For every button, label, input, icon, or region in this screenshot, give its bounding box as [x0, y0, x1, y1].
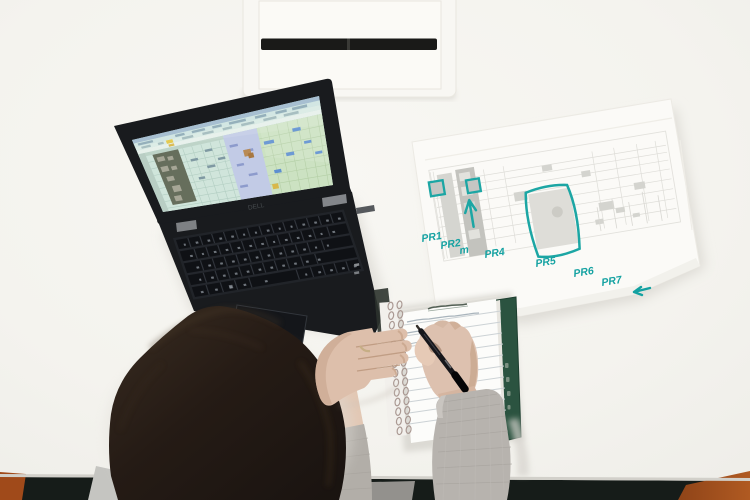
svg-text:m: m [459, 244, 470, 257]
